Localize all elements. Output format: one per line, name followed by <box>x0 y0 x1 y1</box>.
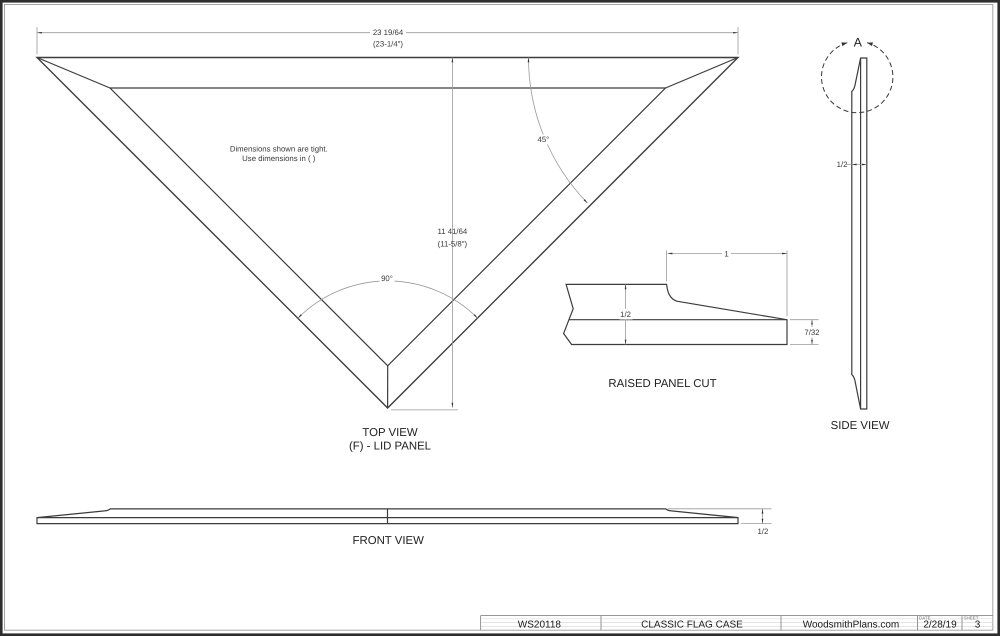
svg-text:RAISED PANEL CUT: RAISED PANEL CUT <box>608 378 716 390</box>
svg-text:WoodsmithPlans.com: WoodsmithPlans.com <box>803 619 900 630</box>
svg-text:2/28/19: 2/28/19 <box>923 620 957 631</box>
svg-text:23 19/64: 23 19/64 <box>373 28 404 37</box>
svg-text:Use dimensions in ( ): Use dimensions in ( ) <box>242 154 316 163</box>
svg-text:1: 1 <box>724 249 728 258</box>
svg-text:SIDE VIEW: SIDE VIEW <box>831 420 890 432</box>
svg-text:Dimensions shown are tight.: Dimensions shown are tight. <box>230 144 328 153</box>
svg-text:11 41/64: 11 41/64 <box>438 227 468 236</box>
svg-text:(11-5/8"): (11-5/8") <box>438 239 468 248</box>
svg-text:1/2: 1/2 <box>620 310 631 319</box>
svg-text:1/2: 1/2 <box>757 527 768 536</box>
svg-text:90°: 90° <box>381 274 393 283</box>
svg-text:(23-1/4"): (23-1/4") <box>373 40 403 49</box>
svg-text:45°: 45° <box>538 135 550 144</box>
svg-text:CLASSIC FLAG CASE: CLASSIC FLAG CASE <box>641 619 743 630</box>
svg-text:(F) - LID PANEL: (F) - LID PANEL <box>349 441 431 453</box>
svg-text:7/32: 7/32 <box>804 328 819 337</box>
svg-text:FRONT VIEW: FRONT VIEW <box>353 535 425 547</box>
svg-text:TOP VIEW: TOP VIEW <box>362 427 418 439</box>
svg-text:1/2: 1/2 <box>837 160 848 169</box>
svg-text:3: 3 <box>975 619 981 630</box>
svg-text:A: A <box>854 35 863 49</box>
svg-text:WS20118: WS20118 <box>518 619 562 630</box>
